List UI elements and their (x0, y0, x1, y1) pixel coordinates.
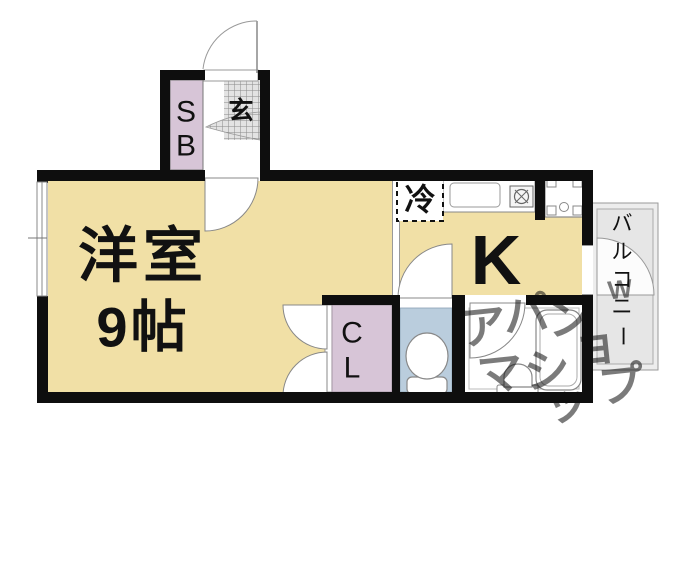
top-wall-right (260, 170, 593, 181)
left-wall-lower (37, 296, 48, 403)
watermark-char: プ (595, 356, 646, 413)
shoebox-label-s: S (176, 96, 196, 129)
balcony-char: ニ (612, 296, 633, 319)
closet-label-l: L (344, 352, 361, 385)
bath-top-wall (526, 295, 593, 305)
closet-toilet-wall (392, 295, 400, 395)
front-door-swing-arc (203, 21, 257, 69)
balcony-char: バ (612, 213, 633, 236)
shoebox-label-b: B (176, 130, 196, 163)
toilet-bath-wall (452, 295, 465, 395)
balcony-char: ル (612, 241, 633, 264)
top-wall-left (37, 170, 170, 181)
sink-icon (450, 183, 500, 207)
balcony-char: コ (612, 269, 633, 292)
closet-top-wall (322, 295, 398, 305)
counter-divider-wall (535, 181, 545, 220)
entrance-label: 玄 (228, 96, 253, 125)
balcony-char: ー (611, 326, 634, 347)
entrance-top-wall-left (160, 70, 205, 80)
entrance-left-wall (160, 70, 170, 181)
refrigerator-label: 冷 (405, 183, 436, 218)
front-door-opening (204, 70, 258, 81)
kitchen-label: K (471, 221, 522, 299)
western-room-label-line1: 洋室 (78, 223, 208, 290)
balcony-door-opening (582, 245, 593, 295)
bottom-wall (37, 392, 593, 403)
closet-label-c: C (341, 317, 363, 350)
left-wall-corner (37, 170, 48, 183)
washing-machine-pan-icon (545, 176, 584, 217)
right-wall-lower (582, 295, 593, 403)
right-wall-upper (582, 170, 593, 245)
toilet-icon (406, 333, 448, 394)
floor-plan-drawing: ア パ マ ン シ ョ ッ プ W 洋 (0, 0, 690, 575)
balcony-label: バ ル コ ニ ー (611, 213, 634, 347)
floor-plan-canvas: ア パ マ ン シ ョ ッ プ W 洋 (0, 0, 690, 575)
western-room-label-line2: 9帖 (96, 296, 189, 359)
entrance-right-wall (260, 70, 270, 181)
